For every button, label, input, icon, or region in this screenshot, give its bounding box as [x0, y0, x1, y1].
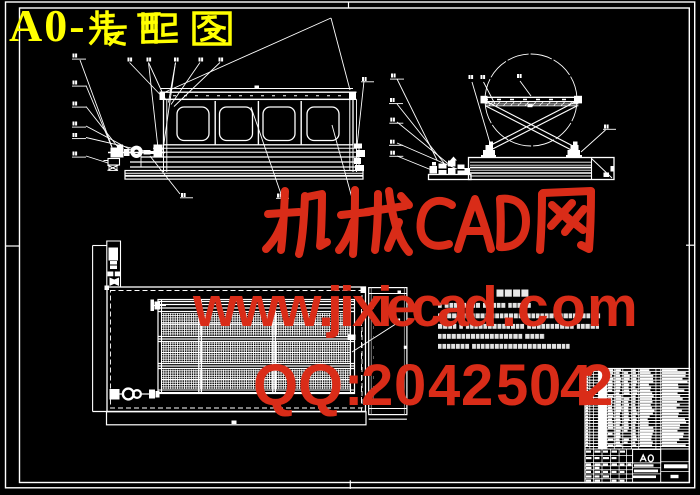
svg-text:A0-: A0- — [9, 0, 87, 51]
svg-text:www.jixiecad.com: www.jixiecad.com — [192, 275, 638, 339]
svg-text:QQ:20425042: QQ:20425042 — [253, 353, 613, 418]
